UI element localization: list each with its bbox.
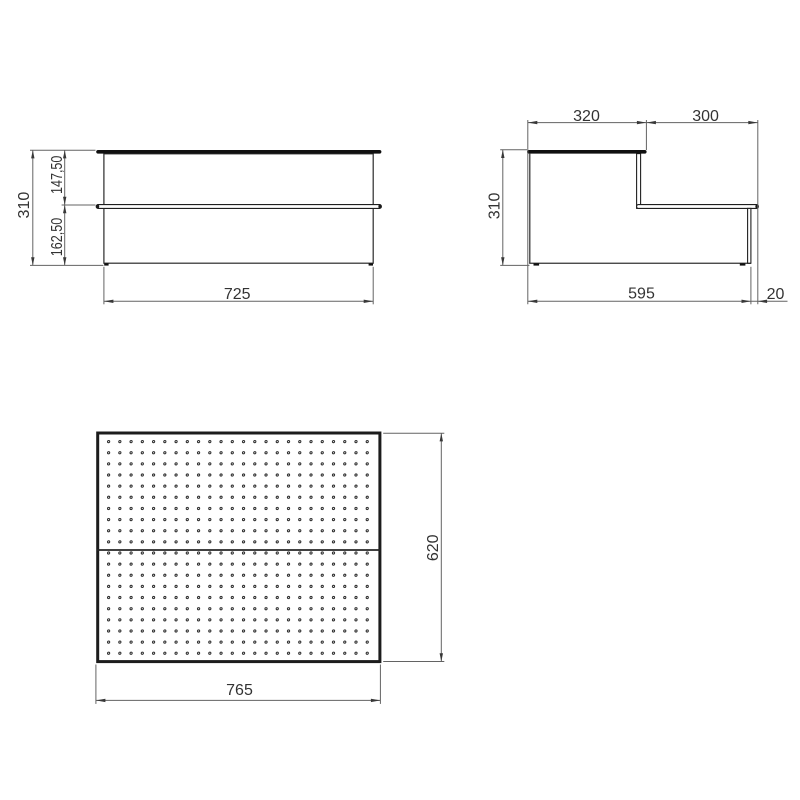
svg-text:765: 765 [226,682,253,699]
svg-text:162,50: 162,50 [49,218,67,256]
svg-text:725: 725 [224,286,251,303]
svg-text:20: 20 [767,286,785,303]
svg-text:595: 595 [628,286,655,303]
svg-text:310: 310 [16,192,33,219]
svg-text:620: 620 [425,534,442,561]
svg-text:320: 320 [573,108,600,125]
svg-text:147,50: 147,50 [49,156,67,194]
svg-text:300: 300 [692,108,719,125]
svg-text:310: 310 [486,192,503,219]
